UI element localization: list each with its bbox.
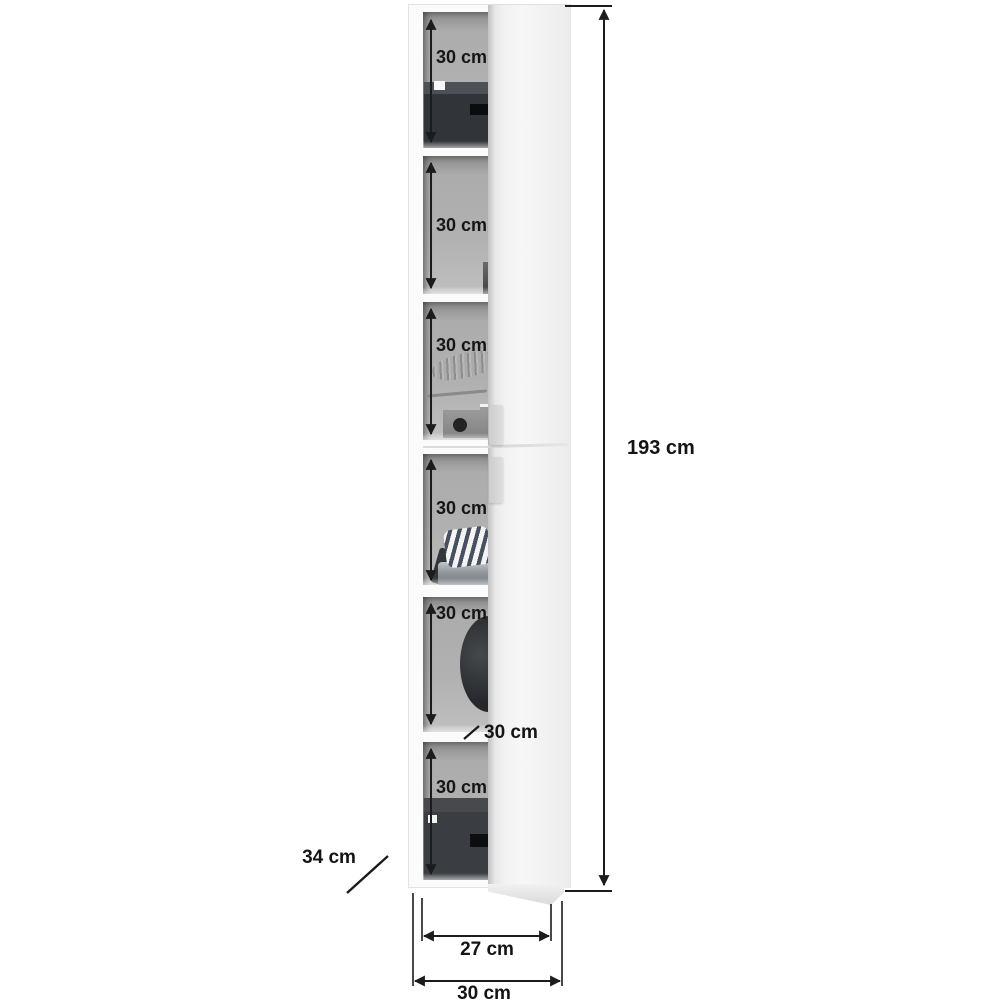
storage-box	[424, 798, 490, 880]
storage-box-front	[424, 94, 490, 148]
compartment-2-height-label: 30 cm	[436, 214, 487, 236]
compartment-6: 30 cm	[423, 742, 490, 880]
compartment-6-height-label: 30 cm	[436, 776, 487, 798]
upper-door-handle	[489, 405, 503, 445]
shelf-depth-label: 30 cm	[484, 722, 538, 744]
compartment-5: 30 cm	[423, 597, 490, 732]
compartment-3: 30 cm	[423, 302, 490, 440]
inner-width-label: 27 cm	[447, 939, 527, 961]
cabinet-door	[488, 4, 570, 888]
compartment-3-height-label: 30 cm	[436, 334, 487, 356]
total-height-label: 193 cm	[627, 437, 695, 460]
compartment-4: 30 cm	[423, 454, 490, 585]
storage-box-with-hole	[443, 410, 489, 438]
storage-box-label	[434, 81, 445, 90]
compartment-5-height-label: 30 cm	[436, 602, 487, 624]
storage-box-label	[428, 815, 437, 823]
product-dimension-diagram: 30 cm 30 cm 30 cm 30 cm 30 cm 30 cm	[0, 0, 1000, 1000]
storage-box-lid	[424, 798, 490, 812]
storage-box	[424, 82, 490, 148]
compartment-2: 30 cm	[423, 156, 490, 294]
compartment-1-height-label: 30 cm	[436, 46, 487, 68]
compartment-1: 30 cm	[423, 12, 490, 148]
middle-divider-seam	[423, 446, 488, 448]
door-bottom-edge	[488, 884, 564, 905]
striped-pillow	[443, 525, 490, 568]
storage-box-handle-slot	[470, 104, 490, 115]
depth-label: 34 cm	[296, 847, 362, 869]
finger-hole	[453, 418, 467, 432]
storage-box-handle-slot	[470, 834, 490, 847]
compartment-4-height-label: 30 cm	[436, 497, 487, 519]
round-bag	[460, 616, 490, 712]
outer-width-label: 30 cm	[444, 983, 524, 1000]
lower-door-handle	[489, 457, 503, 503]
shoe-shadow	[427, 389, 487, 397]
